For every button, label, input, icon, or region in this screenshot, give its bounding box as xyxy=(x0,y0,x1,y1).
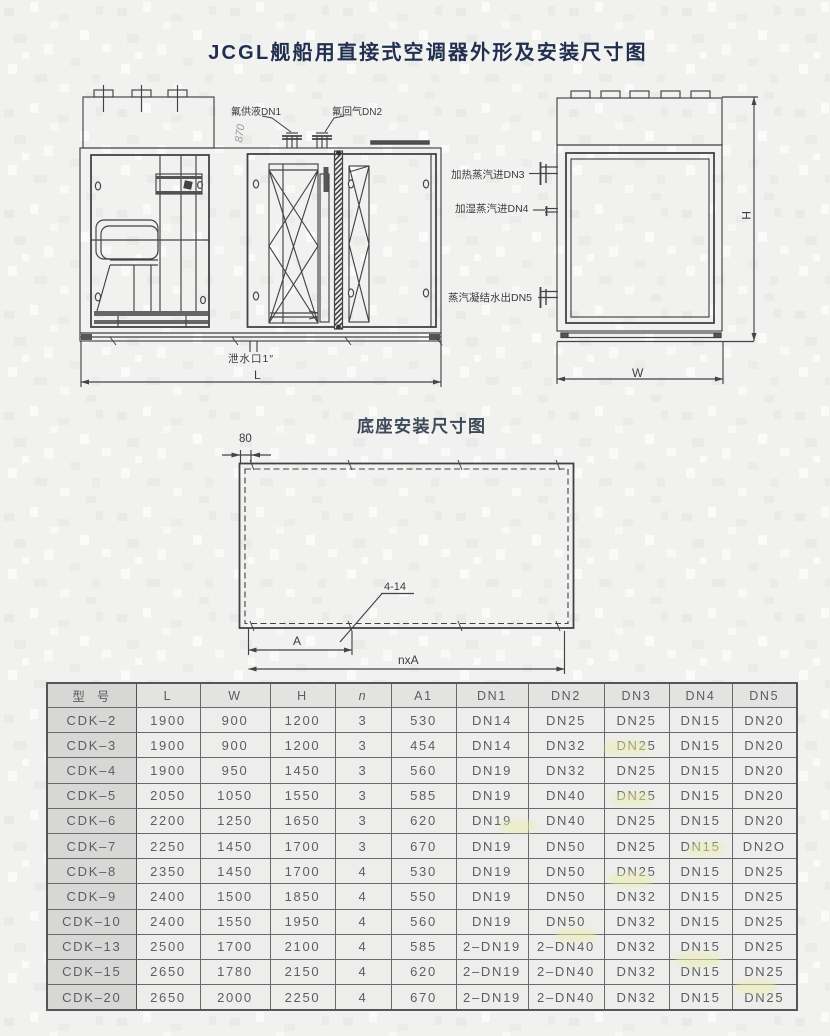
svg-text:加热蒸汽进DN3: 加热蒸汽进DN3 xyxy=(451,168,525,181)
svg-text:H: H xyxy=(739,211,753,220)
svg-text:870: 870 xyxy=(233,123,248,144)
svg-text:L: L xyxy=(254,368,261,382)
svg-text:W: W xyxy=(632,366,644,380)
svg-text:4-14: 4-14 xyxy=(384,581,406,593)
svg-text:80: 80 xyxy=(239,433,252,445)
svg-text:加湿蒸汽进DN4: 加湿蒸汽进DN4 xyxy=(455,202,529,215)
svg-text:泄水口1″: 泄水口1″ xyxy=(228,352,274,365)
svg-text:氟供液DN1: 氟供液DN1 xyxy=(231,105,281,118)
svg-text:底座安装尺寸图: 底座安装尺寸图 xyxy=(357,416,487,436)
svg-text:蒸汽凝结水出DN5: 蒸汽凝结水出DN5 xyxy=(448,291,532,304)
svg-text:A: A xyxy=(293,634,301,648)
svg-text:氟回气DN2: 氟回气DN2 xyxy=(332,105,382,118)
svg-text:nxA: nxA xyxy=(398,653,419,667)
